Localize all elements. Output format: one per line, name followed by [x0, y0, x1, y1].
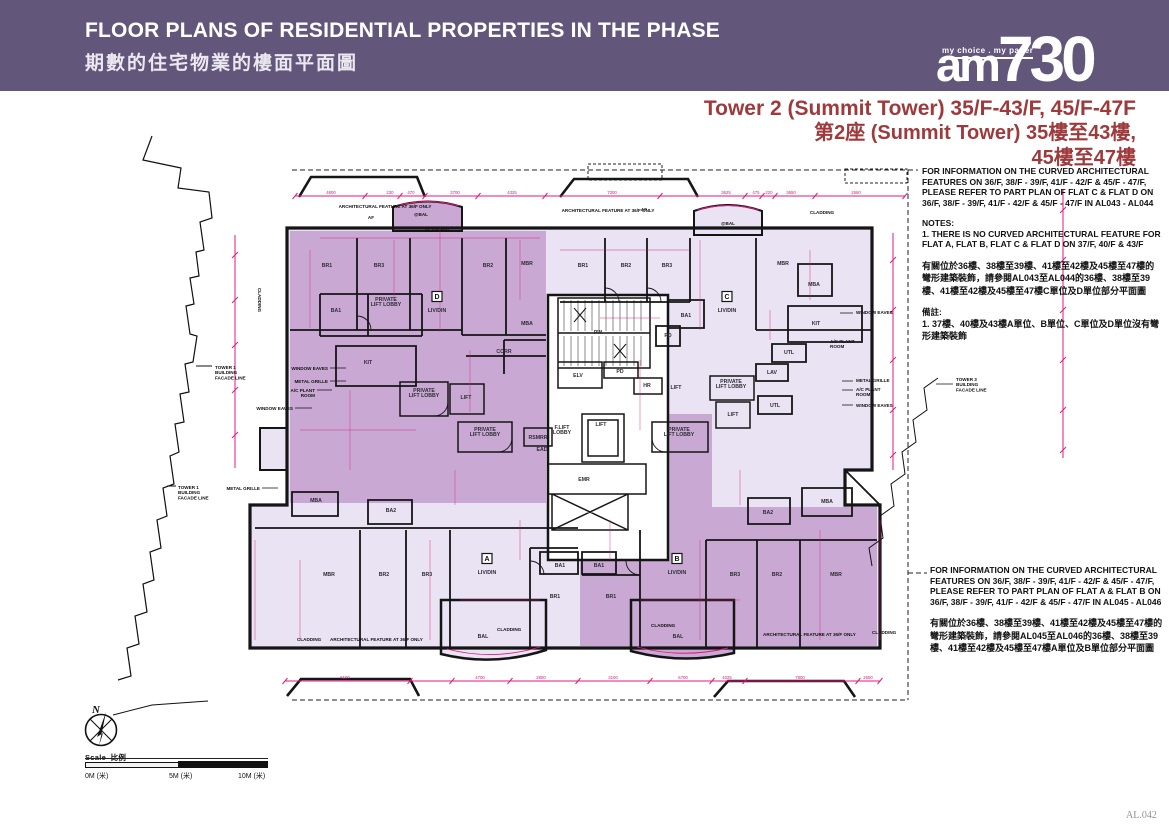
annotation-label: ARCHITECTURAL FEATURE AT 36/F ONLY	[330, 637, 423, 642]
room-label: MBA	[310, 498, 322, 504]
room-label: RSMRR	[528, 435, 547, 441]
note-curved-ab: FOR INFORMATION ON THE CURVED ARCHITECTU…	[930, 565, 1166, 607]
tower1-facade-line	[118, 136, 212, 680]
flat-letter: A	[484, 556, 489, 563]
scale-bar: Scale 比例 0M (米) 5M (米) 10M (米)	[85, 747, 269, 765]
room-label: BA1	[555, 563, 565, 569]
livdin-label: LIV/DIN	[718, 308, 737, 314]
annotation-label: A/C PLANTROOM	[856, 387, 881, 397]
balcony-c	[694, 205, 762, 235]
annotation-label: METAL GRILLE	[226, 486, 260, 491]
compass-needle	[97, 712, 106, 746]
scale-tick-0m: 0M (米)	[85, 771, 108, 781]
room-label: UTL	[770, 403, 781, 409]
annotation-label: WINDOW EAVES	[856, 403, 893, 408]
dimension-label: 2660	[851, 190, 861, 195]
room-label: KIT	[364, 360, 373, 366]
room-label: LIFT	[596, 422, 608, 428]
annotation-label: ARCHITECTURAL FEATURE AT 36/F ONLY	[339, 204, 432, 209]
dimension-label: 3650	[786, 190, 796, 195]
annotation-label: CLADDING	[257, 288, 262, 313]
room-label: BR1	[606, 594, 616, 600]
ac-plant-left	[260, 428, 287, 470]
dashed-feature-box-1	[588, 164, 662, 180]
annotation-label: CLADDING	[651, 623, 676, 628]
room-label: PD	[616, 369, 623, 375]
dimension-label: 4700	[475, 675, 485, 680]
label-line: ROOM	[301, 393, 315, 398]
annotation-label: WINDOW EAVES	[856, 310, 893, 315]
note-curved-ab-zh: 有關位於36樓、38樓至39樓、41樓至42樓及45樓至47樓的彎形建築裝飾，請…	[930, 617, 1166, 655]
dimension-label: 3100	[608, 675, 618, 680]
room-label: BA2	[763, 510, 773, 516]
livdin-label: LIV/DIN	[428, 308, 447, 314]
notes-heading: NOTES:	[922, 218, 1162, 229]
room-label: F.LIFTLOBBY	[553, 425, 572, 436]
notes-top-block: FOR INFORMATION ON THE CURVED ARCHITECTU…	[922, 166, 1162, 353]
room-label: MBR	[777, 261, 789, 267]
annotation-label: @BAL	[721, 221, 735, 226]
label-line: LOBBY	[553, 430, 572, 436]
room-label: MBA	[821, 499, 833, 505]
dimension-label: 475	[752, 190, 760, 195]
annotation-label: CLADDING	[497, 627, 522, 632]
note-1-zh: 1. 37樓、40樓及43樓A單位、B單位、C單位及D單位沒有彎形建築裝飾	[922, 318, 1162, 343]
room-label: BA1	[594, 563, 604, 569]
room-label: BR2	[772, 572, 782, 578]
room-label: BA1	[681, 313, 691, 319]
logo-wordmark: am730	[936, 59, 1136, 77]
annotation-label: TOWER 1BUILDINGFACADE LINE	[215, 365, 246, 380]
room-label: UTL	[784, 350, 795, 356]
room-label: PW	[594, 330, 602, 336]
scale-segment-0-5	[85, 762, 180, 768]
room-label: BAL	[478, 634, 489, 640]
page-number: AL.042	[1126, 810, 1157, 821]
room-label: BR1	[578, 263, 588, 269]
dimension-label: 7800	[795, 675, 805, 680]
dimension-label: 3700	[450, 190, 460, 195]
room-label: BR3	[730, 572, 740, 578]
room-label: BR3	[662, 263, 672, 269]
room-label: ELV	[573, 373, 583, 379]
am730-logo: my choice . my paper am730	[936, 30, 1136, 77]
annotation-label: WINDOW EAVES	[256, 406, 293, 411]
dimension-label: 470	[407, 190, 415, 195]
room-label: BR3	[422, 572, 432, 578]
brochure-page: FLOOR PLANS OF RESIDENTIAL PROPERTIES IN…	[0, 0, 1169, 830]
scale-tick-10m: 10M (米)	[238, 771, 265, 781]
notes-bottom-block: FOR INFORMATION ON THE CURVED ARCHITECTU…	[930, 565, 1166, 665]
note-curved-cd: FOR INFORMATION ON THE CURVED ARCHITECTU…	[922, 166, 1162, 208]
label-line: LIFT LOBBY	[470, 432, 501, 438]
dimension-label: 4325	[507, 190, 517, 195]
label-line: ROOM	[856, 392, 870, 397]
room-label: BAL	[673, 634, 684, 640]
label-line: LIFT LOBBY	[371, 302, 402, 308]
room-label: LIFT	[461, 395, 473, 401]
facade-leaders	[113, 366, 212, 715]
page-title-en: FLOOR PLANS OF RESIDENTIAL PROPERTIES IN…	[85, 19, 720, 43]
room-label: LIFT	[671, 385, 683, 391]
annotation-label: CLADDING	[297, 637, 322, 642]
flat-d-fill	[290, 231, 546, 503]
room-label: BR3	[374, 263, 384, 269]
room-label: CORR	[496, 349, 512, 355]
room-label: PD	[664, 333, 671, 339]
label-line: FACADE LINE	[215, 375, 246, 380]
tower-title-line2: 第2座 (Summit Tower) 35樓至43樓,	[704, 121, 1136, 146]
room-label: MBA	[808, 282, 820, 288]
compass-n-label: N	[91, 704, 101, 716]
label-line: FACADE LINE	[178, 495, 209, 500]
room-label: BA2	[386, 508, 396, 514]
scale-tick-5m: 5M (米)	[169, 771, 192, 781]
flat-letter: B	[674, 556, 679, 563]
note-1: 1. THERE IS NO CURVED ARCHITECTURAL FEAT…	[922, 229, 1162, 250]
tower-title-line1: Tower 2 (Summit Tower) 35/F-43/F, 45/F-4…	[704, 96, 1136, 121]
dimension-label: 2650	[863, 675, 873, 680]
scale-segment-5-10	[178, 761, 268, 768]
room-label: KIT	[812, 321, 821, 327]
room-label: BR2	[483, 263, 493, 269]
dimension-label: 2800	[536, 675, 546, 680]
annotation-label: ARCHITECTURAL FEATURE AT 36/F ONLY	[763, 632, 856, 637]
room-label: BR1	[550, 594, 560, 600]
label-line: LIFT LOBBY	[716, 384, 747, 390]
flat-letter: C	[724, 294, 729, 301]
note-curved-cd-zh: 有關位於36樓、38樓至39樓、41樓至42樓及45樓至47樓的彎形建築裝飾，請…	[922, 260, 1162, 298]
notes-heading-zh: 備註:	[922, 307, 1162, 318]
dimension-label: 4800	[326, 190, 336, 195]
annotation-label: METAL GRILLE	[856, 378, 890, 383]
label-line: LIFT LOBBY	[664, 432, 695, 438]
logo-am: am	[936, 38, 998, 91]
room-label: LIFT	[728, 412, 740, 418]
room-label: BR2	[621, 263, 631, 269]
annotation-label: @BAL	[414, 212, 428, 217]
label-line: LIFT LOBBY	[409, 393, 440, 399]
dimension-label: 6100	[340, 675, 350, 680]
annotation-label: AF	[641, 207, 647, 212]
dimension-label: 7300	[607, 190, 617, 195]
annotation-label: AF	[368, 215, 374, 220]
dashed-feature-box-2	[845, 169, 907, 183]
room-label: MBR	[830, 572, 842, 578]
dimension-label: 3625	[721, 190, 731, 195]
annotation-label: CLADDING	[425, 228, 450, 233]
room-label: BR1	[322, 263, 332, 269]
logo-730: 730	[998, 23, 1093, 95]
room-label: MBA	[521, 321, 533, 327]
annotation-label: METAL GRILLE	[294, 379, 328, 384]
room-label: BA1	[331, 308, 341, 314]
flat-letter: D	[434, 294, 439, 301]
dimension-label: 4025	[722, 675, 732, 680]
annotation-label: TOWER 3BUILDINGFACADE LINE	[956, 377, 987, 392]
annotation-label: CLADDING	[810, 210, 835, 215]
annotation-label: WINDOW EAVES	[291, 366, 328, 371]
label-line: FACADE LINE	[956, 387, 987, 392]
annotation-label: TOWER 1BUILDINGFACADE LINE	[178, 485, 209, 500]
livdin-label: LIV/DIN	[668, 570, 687, 576]
dimension-label: 6700	[678, 675, 688, 680]
dimension-label: 220	[765, 190, 773, 195]
label-line: ROOM	[830, 344, 844, 349]
room-label: MBR	[323, 572, 335, 578]
dimension-label: 230	[386, 190, 394, 195]
scale-rule	[85, 758, 268, 759]
room-label: EAD	[537, 447, 548, 453]
room-label: LAV	[767, 370, 778, 376]
tower-title: Tower 2 (Summit Tower) 35/F-43/F, 45/F-4…	[704, 96, 1136, 171]
annotation-label: CLADDING	[872, 630, 897, 635]
room-label: HR	[643, 383, 651, 389]
livdin-label: LIV/DIN	[478, 570, 497, 576]
page-title-zh: 期數的住宅物業的樓面平面圖	[85, 48, 358, 75]
room-label: EMR	[578, 477, 590, 483]
room-label: MBR	[521, 261, 533, 267]
room-label: BR2	[379, 572, 389, 578]
